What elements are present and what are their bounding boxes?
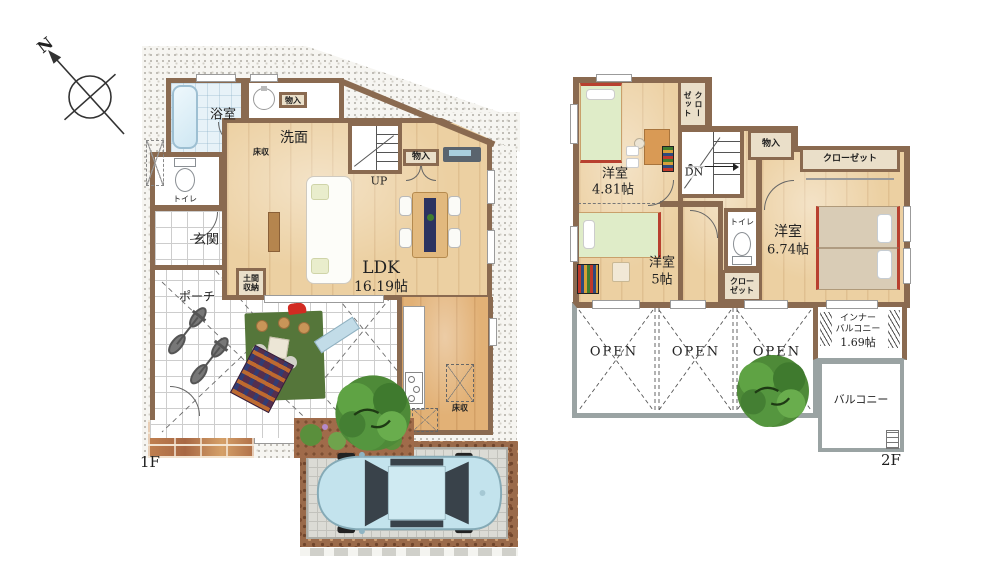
stair-step: [377, 161, 398, 162]
sliding-window: [264, 295, 384, 303]
ldk-size-label: 16.19帖: [354, 276, 408, 296]
window: [196, 74, 236, 82]
nightstand: [612, 262, 630, 282]
toilet-2f-label: トイレ: [730, 217, 754, 228]
shrub: [300, 424, 322, 446]
window: [826, 300, 878, 309]
bed-pillow: [586, 89, 615, 100]
inner-balcony-hatch-l: [820, 312, 832, 346]
sofa-cushion-1: [311, 184, 329, 200]
washroom-label: 洗面: [280, 127, 308, 147]
table-plant: [427, 214, 434, 221]
open-label-1: OPEN: [590, 345, 638, 360]
porch-label: ポーチ: [179, 288, 215, 305]
storage-2f-box: 物入: [748, 130, 794, 160]
bedroom2-size-label: 5帖: [651, 269, 672, 288]
inner-balcony-size: 1.69帖: [840, 334, 876, 350]
storage-2f-label: 物入: [762, 140, 780, 150]
ldk-name-label: LDK: [362, 258, 400, 278]
utility-space: [146, 140, 164, 186]
toilet-tank-1f: [174, 158, 196, 167]
balcony-label: バルコニー: [834, 391, 889, 407]
bookshelf-1: [662, 146, 674, 172]
side-shelf: [268, 212, 280, 252]
stairs-dn-label: DN: [683, 166, 705, 179]
bedroom3-size-label: 6.74帖: [767, 239, 809, 258]
toilet-bowl-2f: [733, 232, 751, 256]
table-runner: [424, 198, 436, 252]
stair-arrow-head: [733, 163, 739, 171]
compass-icon: N: [36, 34, 138, 146]
toilet-tank-2f: [732, 256, 752, 265]
window: [903, 206, 911, 242]
inner-balcony-hatch-r: [888, 310, 900, 348]
toilet-1f-label: トイレ: [173, 194, 197, 205]
open-label-2: OPEN: [672, 345, 720, 360]
closet-top-label: クローゼット: [682, 88, 704, 120]
stair-step: [714, 174, 740, 175]
bicycle-icon: [166, 302, 238, 390]
stair-step: [714, 152, 740, 153]
storage-ldk-label: 物入: [412, 153, 430, 163]
dining-chair-3: [448, 196, 461, 216]
stair-diagonal: [354, 135, 394, 167]
window: [250, 74, 278, 82]
bed-double-pillow-2: [877, 250, 892, 279]
floor-cushion-1: [626, 146, 639, 156]
dining-chair-2: [399, 228, 412, 248]
tv-screen: [449, 150, 471, 156]
storage-wash-box: 物入: [279, 92, 307, 108]
window: [489, 318, 497, 346]
window: [903, 248, 911, 284]
floor-storage-kitchen-box: [446, 364, 474, 402]
closet-top-box: クローゼット: [678, 80, 708, 128]
stairs-1f: [348, 122, 402, 174]
dining-chair-4: [448, 228, 461, 248]
washbasin: [253, 88, 275, 110]
storage-ldk-box: 物入: [403, 149, 439, 166]
window: [596, 74, 632, 82]
porch-left-wall: [150, 264, 155, 420]
mat-cushion-1: [256, 320, 268, 332]
washbasin-faucet: [261, 86, 267, 91]
floor-plan-canvas: 物入 物入 土間収納: [0, 0, 1000, 579]
inner-balcony-line2: バルコニー: [836, 322, 881, 335]
bathroom-label: 浴室: [210, 104, 236, 123]
sofa-cushion-2: [311, 258, 329, 274]
dining-chair-1: [399, 196, 412, 216]
window: [744, 300, 788, 309]
tree-icon-2f: [728, 346, 818, 436]
bed-double-pillow-1: [877, 214, 892, 243]
closet-mid-box: クローゼット: [722, 270, 762, 302]
bathtub: [172, 85, 198, 149]
window: [487, 170, 495, 204]
stairs-up-label: UP: [371, 175, 388, 188]
bookshelf-2: [577, 264, 599, 294]
floor-storage-wash-label: 床収: [253, 147, 269, 158]
doma-storage-box: 土間収納: [236, 268, 266, 298]
bedroom1-size-label: 4.81帖: [592, 179, 634, 198]
floor1-label: 1F: [140, 453, 160, 471]
tree-icon-1f: [326, 366, 420, 460]
road-strip: [300, 548, 518, 556]
car-illustration: [310, 449, 506, 537]
balcony-ladder-icon: [886, 430, 899, 449]
closet-right-box: クローゼット: [800, 147, 900, 172]
mat-cushion-2: [278, 317, 290, 329]
floor-storage-kitchen-label: 床収: [452, 403, 468, 414]
stairs-2f: [678, 128, 744, 198]
bedroom2-top-wall: [660, 201, 723, 207]
window: [670, 300, 706, 309]
window: [592, 300, 640, 309]
doma-storage-label: 土間収納: [243, 274, 260, 292]
window: [487, 230, 495, 264]
closet-mid-label: クローゼット: [729, 277, 755, 295]
bed-pillow-2: [583, 220, 595, 249]
storage-wash-label: 物入: [285, 96, 301, 105]
stair-step: [377, 134, 398, 135]
toilet-bowl-1f: [175, 168, 195, 192]
closet-rod: [806, 178, 894, 180]
window: [570, 104, 578, 144]
mat-cushion-3: [298, 322, 310, 334]
floor2-label: 2F: [881, 451, 901, 469]
stair-step: [377, 152, 398, 153]
entrance-label: 玄関: [193, 229, 219, 248]
window: [570, 226, 578, 262]
closet-right-label: クローゼット: [823, 155, 877, 165]
bed-double-crease: [817, 247, 899, 249]
